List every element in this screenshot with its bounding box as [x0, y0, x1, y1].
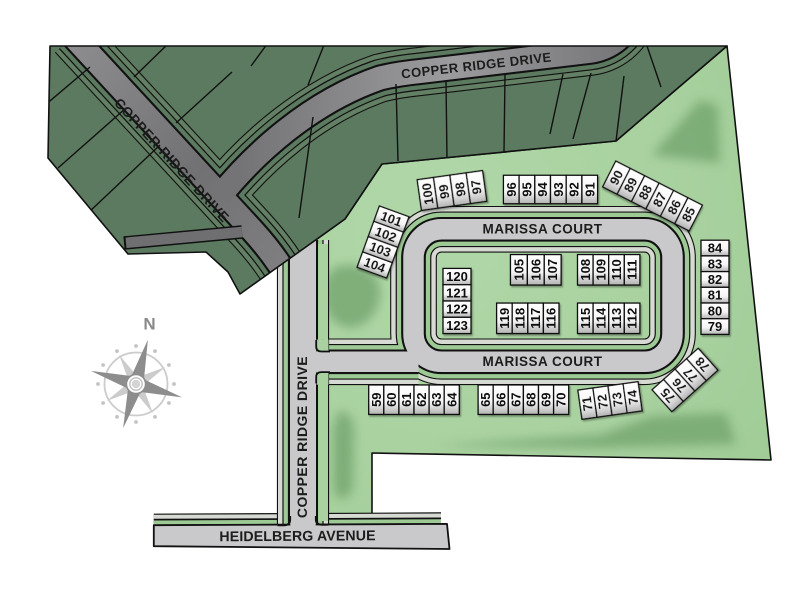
svg-text:98: 98 — [452, 181, 469, 197]
svg-text:99: 99 — [435, 183, 452, 199]
svg-text:62: 62 — [414, 392, 429, 406]
svg-text:118: 118 — [513, 308, 528, 329]
svg-text:105: 105 — [511, 259, 526, 281]
svg-text:100: 100 — [419, 182, 437, 206]
svg-text:115: 115 — [578, 308, 593, 329]
svg-text:96: 96 — [504, 182, 519, 196]
svg-text:110: 110 — [609, 259, 624, 280]
svg-text:119: 119 — [497, 308, 512, 329]
svg-text:61: 61 — [399, 392, 414, 406]
svg-text:114: 114 — [593, 307, 608, 329]
svg-text:113: 113 — [609, 308, 624, 329]
svg-text:84: 84 — [708, 241, 723, 256]
svg-text:83: 83 — [708, 256, 722, 271]
svg-text:65: 65 — [478, 392, 493, 406]
svg-text:95: 95 — [519, 182, 534, 196]
svg-text:82: 82 — [708, 272, 722, 287]
svg-text:79: 79 — [708, 319, 722, 334]
svg-text:116: 116 — [544, 308, 559, 329]
svg-text:67: 67 — [508, 392, 523, 406]
svg-text:112: 112 — [625, 308, 640, 329]
svg-text:92: 92 — [567, 182, 582, 196]
svg-text:64: 64 — [444, 392, 459, 407]
svg-text:93: 93 — [551, 182, 566, 196]
svg-text:111: 111 — [625, 260, 640, 280]
svg-text:108: 108 — [578, 259, 593, 281]
svg-text:59: 59 — [369, 392, 384, 406]
svg-text:63: 63 — [429, 392, 444, 406]
svg-text:121: 121 — [446, 285, 468, 300]
svg-text:74: 74 — [624, 388, 641, 405]
svg-text:68: 68 — [523, 392, 538, 406]
svg-text:71: 71 — [579, 395, 596, 411]
svg-text:60: 60 — [384, 392, 399, 406]
svg-text:91: 91 — [582, 182, 597, 196]
svg-text:69: 69 — [539, 392, 554, 406]
svg-text:MARISSA COURT: MARISSA COURT — [483, 221, 603, 236]
svg-text:122: 122 — [446, 302, 468, 317]
svg-text:72: 72 — [594, 393, 611, 409]
svg-text:81: 81 — [708, 288, 722, 303]
svg-text:66: 66 — [493, 392, 508, 406]
svg-text:80: 80 — [708, 303, 722, 318]
svg-text:106: 106 — [528, 259, 543, 281]
svg-text:94: 94 — [535, 182, 550, 197]
svg-text:COPPER RIDGE DRIVE: COPPER RIDGE DRIVE — [294, 356, 310, 518]
svg-text:120: 120 — [446, 269, 468, 284]
svg-text:107: 107 — [545, 259, 560, 281]
svg-text:117: 117 — [528, 308, 543, 329]
svg-text:N: N — [143, 315, 155, 334]
svg-text:73: 73 — [609, 391, 626, 407]
svg-text:109: 109 — [593, 259, 608, 281]
svg-text:97: 97 — [468, 179, 485, 195]
svg-text:MARISSA COURT: MARISSA COURT — [483, 354, 603, 369]
svg-text:70: 70 — [554, 392, 569, 406]
svg-text:123: 123 — [446, 318, 468, 333]
svg-text:HEIDELBERG AVENUE: HEIDELBERG AVENUE — [219, 528, 375, 545]
